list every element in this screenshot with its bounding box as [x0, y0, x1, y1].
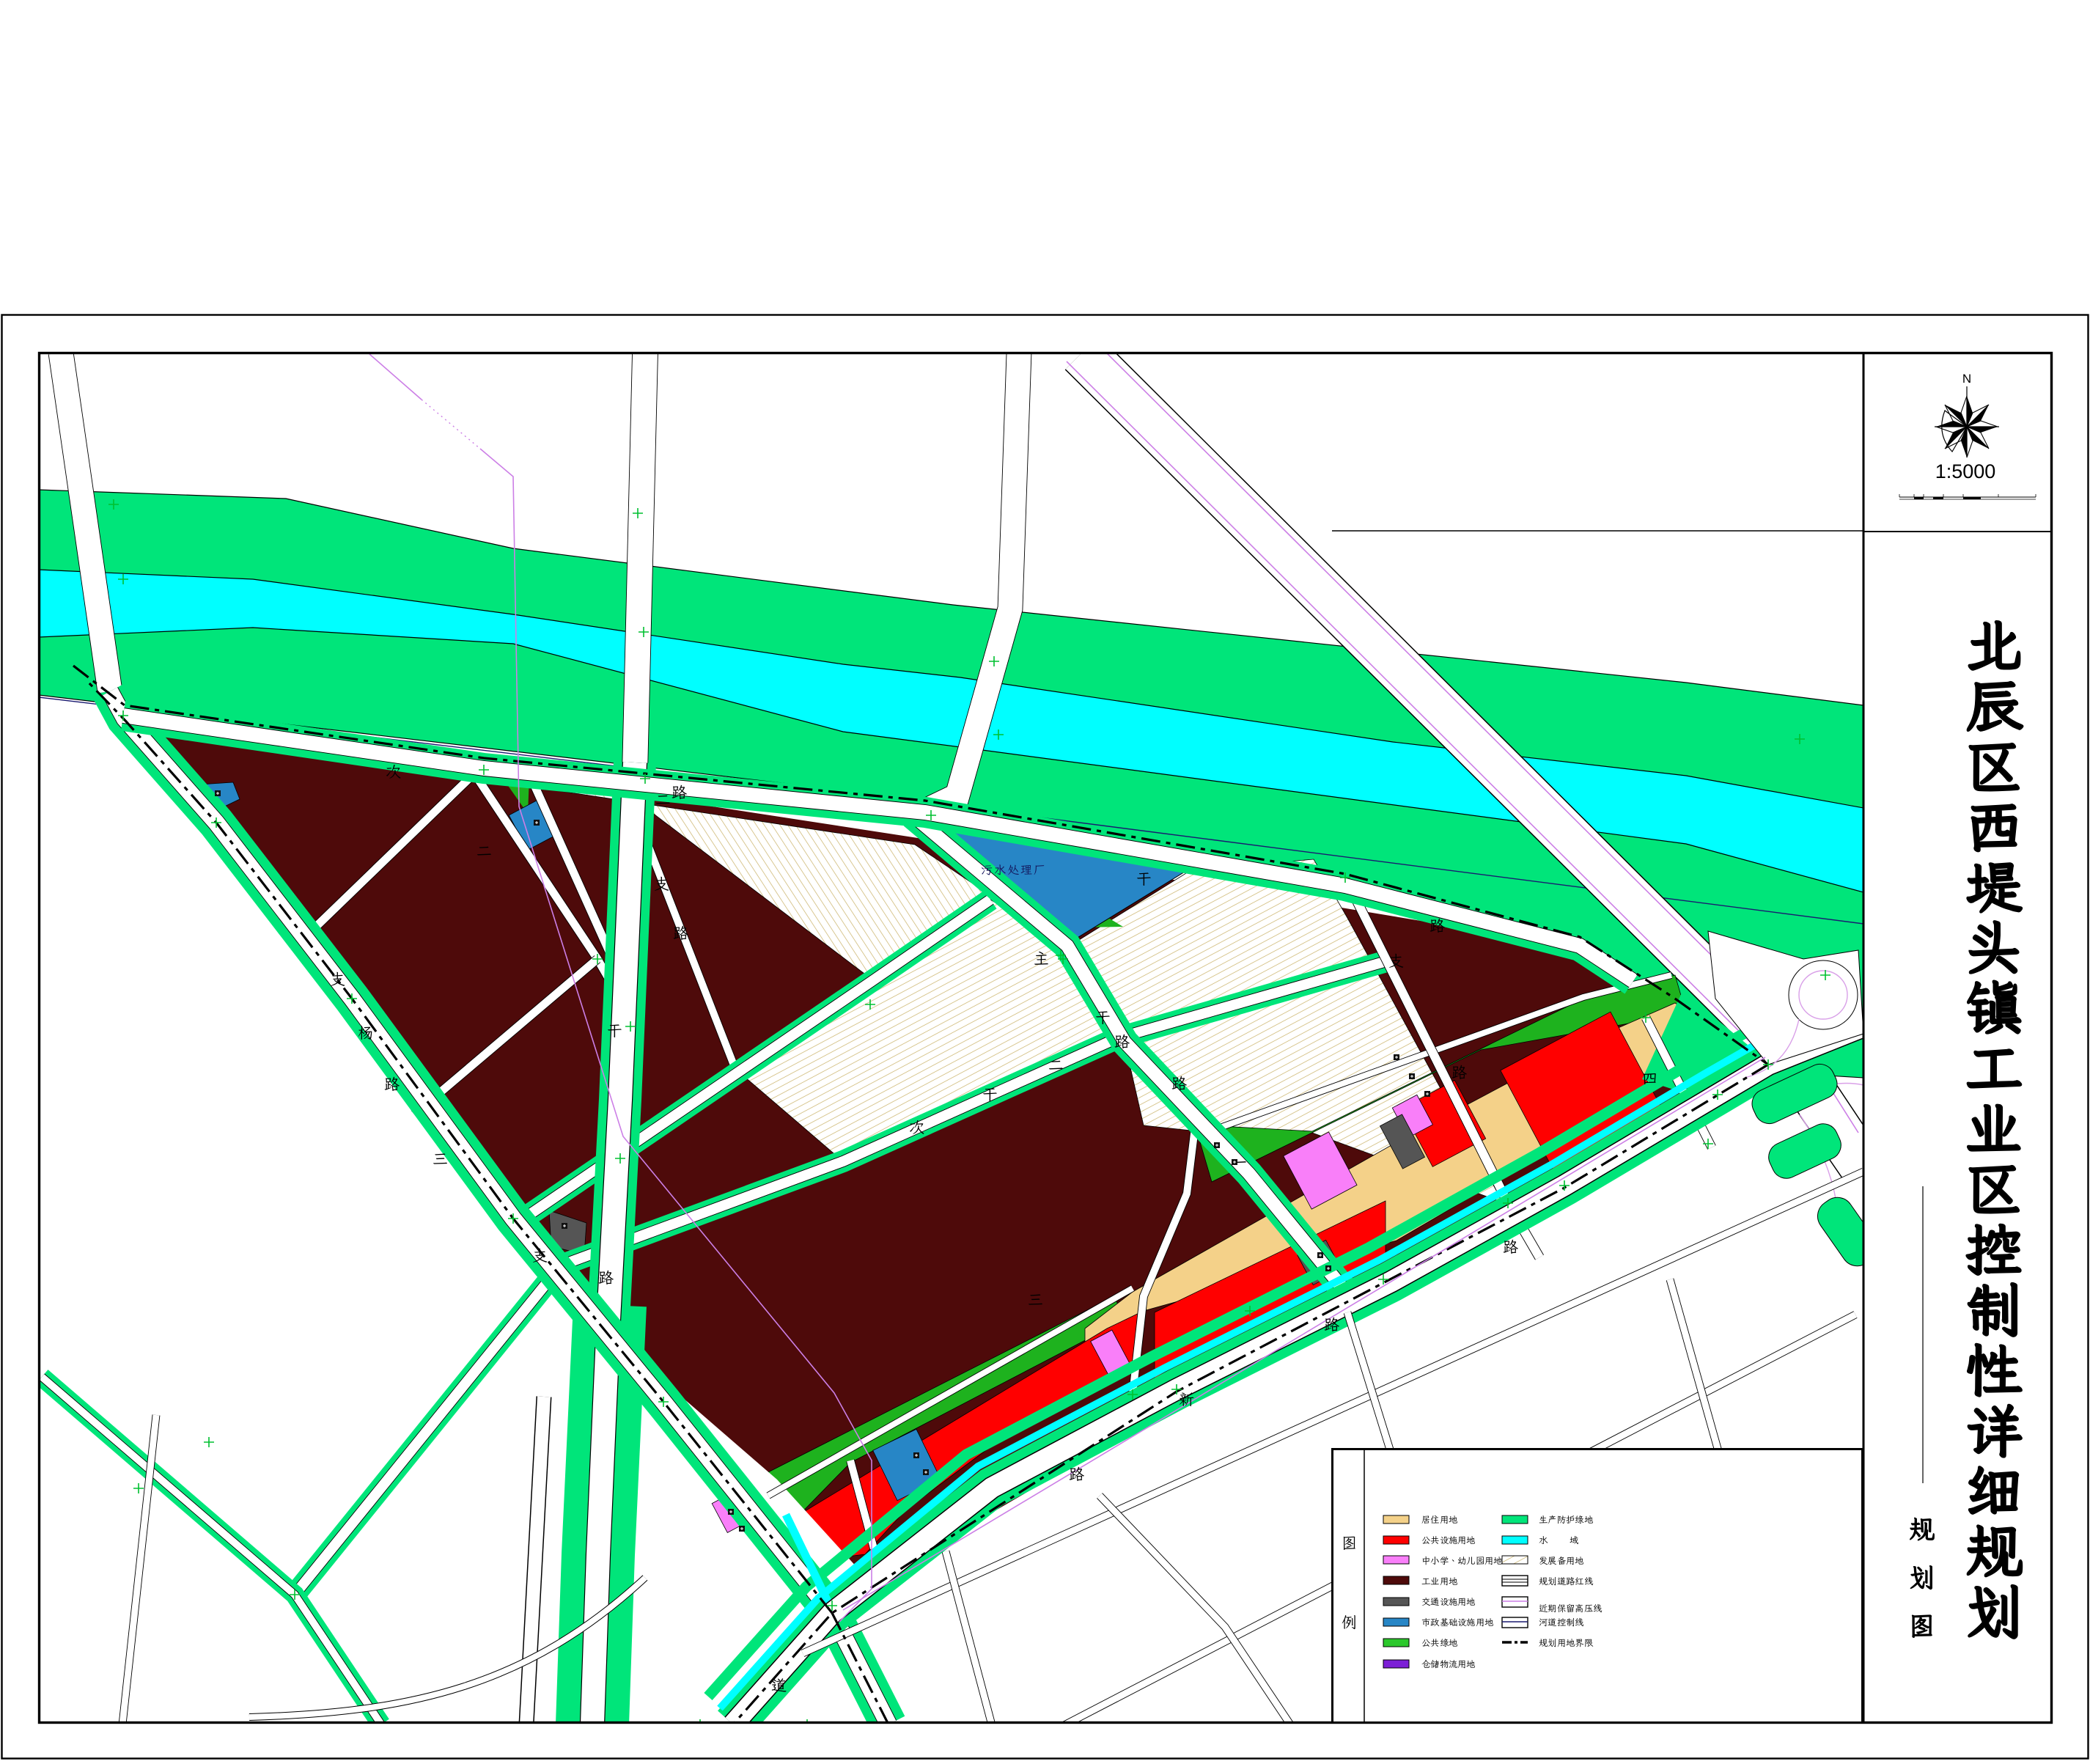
svg-text:1:5000: 1:5000 [1935, 460, 1996, 482]
svg-text:N: N [1962, 372, 1971, 386]
